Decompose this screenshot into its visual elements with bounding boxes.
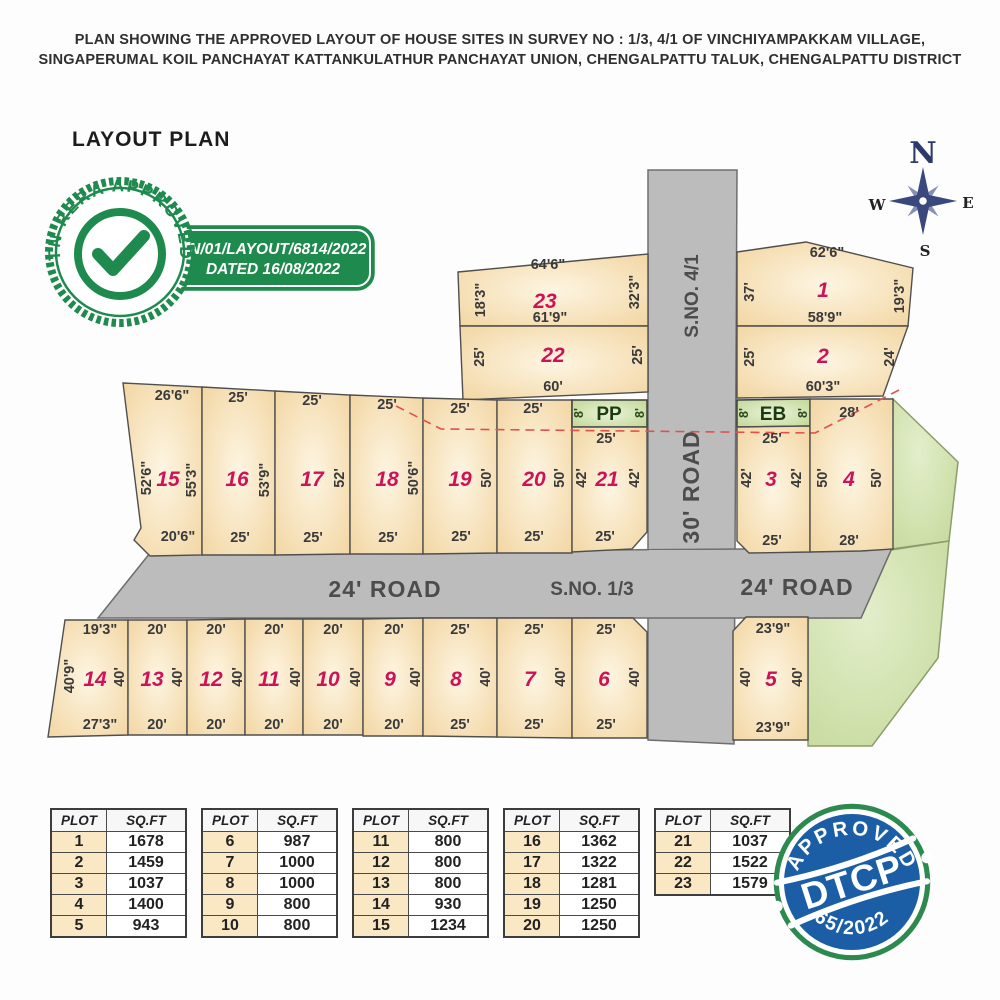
plot-21-right-dim: 42' [627, 468, 643, 488]
plot-1-top-dim: 62'6" [810, 245, 845, 261]
plot-15-left-dim: 52'6" [139, 461, 155, 496]
plot-1-right-dim: 19'3" [892, 279, 908, 314]
sqft-value-cell: 800 [409, 853, 489, 874]
plot-16-number: 16 [225, 468, 249, 491]
plot-4-bottom-dim: 28' [839, 533, 859, 549]
table-row: 201250 [504, 916, 639, 938]
plot-12-bottom-dim: 20' [206, 717, 226, 733]
plot-22-left-dim: 25' [472, 347, 488, 367]
plot-22-bottom-dim: 60' [543, 379, 563, 395]
plot-number-cell: 18 [504, 874, 560, 895]
plot-19-right-dim: 50' [479, 468, 495, 488]
plot-13-top-dim: 20' [147, 622, 167, 638]
sqft-value-cell: 1281 [560, 874, 640, 895]
plot-14-top-dim: 19'3" [83, 622, 118, 638]
plot-number-cell: 13 [353, 874, 409, 895]
table-row: 5943 [51, 916, 186, 938]
table-row: 71000 [202, 853, 337, 874]
sqft-value-cell: 1000 [258, 853, 338, 874]
plot-14-number: 14 [83, 668, 107, 691]
plot-16-top-dim: 25' [228, 390, 248, 406]
plot-area-table-2: PLOTSQ.FT69877100081000980010800 [201, 808, 338, 938]
plot-number-cell: 6 [202, 832, 258, 853]
table-row: 181281 [504, 874, 639, 895]
sqft-value-cell: 800 [258, 895, 338, 916]
sqft-value-cell: 943 [107, 916, 187, 938]
plot-12-right-dim: 40' [230, 667, 246, 687]
sqft-value-cell: 800 [409, 874, 489, 895]
plot-7-right-dim: 40' [553, 667, 569, 687]
plot-23-top-dim: 64'6" [531, 257, 566, 273]
plot-3-bottom-dim: 25' [762, 533, 782, 549]
sqft-value-cell: 800 [258, 916, 338, 938]
dtcp-approval-badge: APPROVED 65/2022 DTCP [762, 792, 942, 972]
plot-14-bottom-dim: 27'3" [83, 717, 118, 733]
plot-15-right-dim: 55'3" [184, 463, 200, 498]
plot-number-cell: 12 [353, 853, 409, 874]
plot-11-number: 11 [258, 668, 280, 691]
plot-16-bottom-dim: 25' [230, 530, 250, 546]
plot-21-left-dim: 42' [574, 468, 590, 488]
plot-3-number: 3 [765, 468, 777, 491]
road-junction [649, 550, 736, 617]
plot-9-number: 9 [384, 668, 396, 691]
plot-19-top-dim: 25' [450, 401, 470, 417]
eb-strip-right-dim: 8' [796, 408, 810, 418]
plot-number-cell: 4 [51, 895, 107, 916]
plot-12-number: 12 [199, 668, 223, 691]
plot-14-left-dim: 40'9" [62, 659, 78, 694]
compass-west-label: W [868, 196, 887, 214]
plot-1-number: 1 [817, 279, 829, 302]
sqft-value-cell: 1250 [560, 895, 640, 916]
sqft-value-cell: 1250 [560, 916, 640, 938]
plot-8-bottom-dim: 25' [450, 717, 470, 733]
plot-3-left-dim: 42' [739, 468, 755, 488]
table-row: 13800 [353, 874, 488, 895]
plot-17-top-dim: 25' [302, 393, 322, 409]
plot-23-bottom-dim: 61'9" [533, 310, 568, 326]
plot-17-right-dim: 52' [332, 468, 348, 488]
plot-1-bottom-dim: 58'9" [808, 310, 843, 326]
plot-9-bottom-dim: 20' [384, 717, 404, 733]
sqft-value-cell: 1037 [107, 874, 187, 895]
plot-23-left-dim: 18'3" [473, 283, 489, 318]
plot-4-right-dim: 50' [869, 468, 885, 488]
table-row: 10800 [202, 916, 337, 938]
plot-number-cell: 23 [655, 874, 711, 896]
plot-11-top-dim: 20' [264, 622, 284, 638]
pp-strip-label: PP [596, 404, 622, 425]
road-24-left-label: 24' ROAD [328, 576, 441, 602]
sqft-value-cell: 1459 [107, 853, 187, 874]
plot-number-cell: 20 [504, 916, 560, 938]
plot-5-bottom-dim: 23'9" [756, 720, 791, 736]
plot-2-number: 2 [816, 345, 829, 368]
table-header: SQ.FT [258, 809, 338, 832]
table-row: 9800 [202, 895, 337, 916]
plot-18-number: 18 [375, 468, 399, 491]
survey-41-label: S.NO. 4/1 [682, 254, 703, 338]
sqft-value-cell: 1678 [107, 832, 187, 853]
plot-20-number: 20 [521, 468, 546, 491]
plot-10-right-dim: 40' [348, 667, 364, 687]
plot-14-right-dim: 40' [112, 667, 128, 687]
table-row: 171322 [504, 853, 639, 874]
plot-4-top-dim: 28' [839, 405, 859, 421]
pp-strip-right-dim: 8' [633, 408, 647, 418]
sqft-value-cell: 1000 [258, 874, 338, 895]
plot-number-cell: 16 [504, 832, 560, 853]
compass-south-label: S [920, 242, 931, 260]
plot-6-bottom-dim: 25' [596, 717, 616, 733]
table-row: 14930 [353, 895, 488, 916]
table-row: 81000 [202, 874, 337, 895]
plot-16-right-dim: 53'9" [257, 463, 273, 498]
plot-number-cell: 22 [655, 853, 711, 874]
plot-6-top-dim: 25' [596, 622, 616, 638]
table-row: 12800 [353, 853, 488, 874]
plot-13-bottom-dim: 20' [147, 717, 167, 733]
table-header: PLOT [504, 809, 560, 832]
plot-number-cell: 8 [202, 874, 258, 895]
compass-north-label: N [909, 136, 936, 171]
plot-number-cell: 3 [51, 874, 107, 895]
plot-6-number: 6 [598, 668, 610, 691]
sqft-value-cell: 930 [409, 895, 489, 916]
compass-east-label: E [962, 194, 973, 212]
plot-7-top-dim: 25' [524, 622, 544, 638]
plot-area-table-4: PLOTSQ.FT161362171322181281191250201250 [503, 808, 640, 938]
plot-number-cell: 10 [202, 916, 258, 938]
plot-2-right-dim: 24' [882, 347, 898, 367]
green-area-right [892, 399, 958, 549]
plot-number-cell: 17 [504, 853, 560, 874]
plot-5-number: 5 [765, 668, 777, 691]
plot-15-top-dim: 26'6" [155, 388, 190, 404]
plot-11-bottom-dim: 20' [264, 717, 284, 733]
table-header: SQ.FT [560, 809, 640, 832]
plot-2-left-dim: 25' [742, 347, 758, 367]
plot-21-number: 21 [594, 468, 618, 491]
compass-rose: N E S W [868, 136, 974, 260]
plot-18-bottom-dim: 25' [378, 530, 398, 546]
plot-number-cell: 15 [353, 916, 409, 938]
plot-3-top-dim: 25' [762, 431, 782, 447]
sqft-value-cell: 987 [258, 832, 338, 853]
sqft-value-cell: 800 [409, 832, 489, 853]
pp-strip-left-dim: 8' [572, 408, 586, 418]
plot-5-top-dim: 23'9" [756, 621, 791, 637]
plot-18-top-dim: 25' [377, 397, 397, 413]
plot-22-right-dim: 25' [630, 345, 646, 365]
table-row: 41400 [51, 895, 186, 916]
plot-area-table-3: PLOTSQ.FT11800128001380014930151234 [352, 808, 489, 938]
plot-12-top-dim: 20' [206, 622, 226, 638]
plot-7-bottom-dim: 25' [524, 717, 544, 733]
plot-area-table-1: PLOTSQ.FT116782145931037414005943 [50, 808, 187, 938]
plot-number-cell: 14 [353, 895, 409, 916]
table-row: 151234 [353, 916, 488, 938]
plot-17-number: 17 [300, 468, 325, 491]
plot-number-cell: 1 [51, 832, 107, 853]
eb-strip-left-dim: 8' [737, 408, 751, 418]
plot-number-cell: 11 [353, 832, 409, 853]
road-30-label: 30' ROAD [678, 430, 704, 543]
plot-7-number: 7 [524, 668, 537, 691]
table-header: PLOT [202, 809, 258, 832]
table-row: 161362 [504, 832, 639, 853]
plot-20-bottom-dim: 25' [524, 529, 544, 545]
plot-15-number: 15 [156, 468, 180, 491]
table-header: SQ.FT [409, 809, 489, 832]
plot-number-cell: 5 [51, 916, 107, 938]
table-row: 31037 [51, 874, 186, 895]
plot-9-right-dim: 40' [408, 667, 424, 687]
road-24-right-label: 24' ROAD [740, 574, 853, 600]
table-header: PLOT [353, 809, 409, 832]
plot-22-number: 22 [540, 344, 565, 367]
plot-21-bottom-dim: 25' [595, 529, 615, 545]
sqft-value-cell: 1322 [560, 853, 640, 874]
plot-4-number: 4 [842, 468, 855, 491]
plot-19-bottom-dim: 25' [451, 529, 471, 545]
table-row: 11800 [353, 832, 488, 853]
table-row: 11678 [51, 832, 186, 853]
table-header: PLOT [51, 809, 107, 832]
survey-13-label: S.NO. 1/3 [550, 579, 633, 600]
plot-8-number: 8 [450, 668, 462, 691]
plot-5-left-dim: 40' [738, 667, 754, 687]
sqft-value-cell: 1400 [107, 895, 187, 916]
plot-1-left-dim: 37' [742, 282, 758, 302]
table-row: 21459 [51, 853, 186, 874]
plot-11-right-dim: 40' [288, 667, 304, 687]
plot-number-cell: 19 [504, 895, 560, 916]
table-header: PLOT [655, 809, 711, 832]
eb-strip-label: EB [760, 404, 786, 425]
plot-19-number: 19 [448, 468, 472, 491]
plot-15-bottom-dim: 20'6" [161, 529, 196, 545]
plot-23-right-dim: 32'3" [627, 275, 643, 310]
plot-3-right-dim: 42' [789, 468, 805, 488]
plot-number-cell: 21 [655, 832, 711, 853]
plot-20-right-dim: 50' [552, 468, 568, 488]
plot-10-bottom-dim: 20' [323, 717, 343, 733]
plot-number-cell: 7 [202, 853, 258, 874]
plot-8-top-dim: 25' [450, 622, 470, 638]
table-row: 6987 [202, 832, 337, 853]
plot-18-right-dim: 50'6" [406, 461, 422, 496]
plot-10-top-dim: 20' [323, 622, 343, 638]
table-header: SQ.FT [107, 809, 187, 832]
plot-number-cell: 9 [202, 895, 258, 916]
plot-number-cell: 2 [51, 853, 107, 874]
sqft-value-cell: 1234 [409, 916, 489, 938]
sqft-value-cell: 1362 [560, 832, 640, 853]
plot-9-top-dim: 20' [384, 622, 404, 638]
table-row: 191250 [504, 895, 639, 916]
plot-6-right-dim: 40' [627, 667, 643, 687]
plot-4-left-dim: 50' [815, 468, 831, 488]
plot-5-right-dim: 40' [790, 667, 806, 687]
plot-2-bottom-dim: 60'3" [806, 379, 841, 395]
plot-17-bottom-dim: 25' [303, 530, 323, 546]
plot-13-number: 13 [140, 668, 164, 691]
plot-10-number: 10 [316, 668, 340, 691]
plot-13-right-dim: 40' [170, 667, 186, 687]
plot-21-top-dim: 25' [596, 431, 616, 447]
area-statement-tables: PLOTSQ.FT116782145931037414005943 PLOTSQ… [50, 808, 791, 938]
plot-20-top-dim: 25' [523, 401, 543, 417]
plot-8-right-dim: 40' [478, 667, 494, 687]
layout-plan-page: PLAN SHOWING THE APPROVED LAYOUT OF HOUS… [0, 0, 1000, 1000]
